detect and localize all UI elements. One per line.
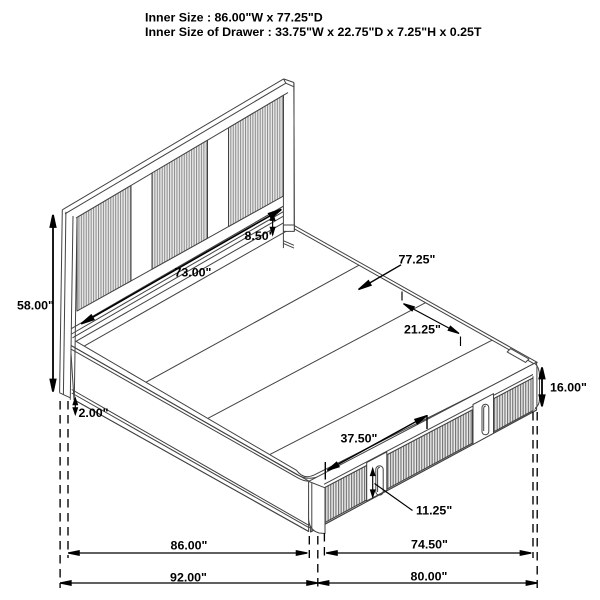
svg-text:74.50": 74.50" (411, 538, 448, 552)
svg-text:Inner Size of Drawer : 33.75"W: Inner Size of Drawer : 33.75"W x 22.75"D… (145, 25, 482, 39)
svg-text:86.00": 86.00" (171, 538, 208, 552)
svg-text:11.25": 11.25" (416, 504, 452, 518)
svg-text:58.00": 58.00" (17, 299, 54, 313)
svg-text:80.00": 80.00" (411, 570, 448, 584)
svg-text:77.25": 77.25" (399, 253, 436, 267)
svg-text:73.00": 73.00" (175, 266, 212, 280)
svg-text:21.25": 21.25" (404, 323, 441, 337)
svg-text:Inner Size : 86.00"W x 77.25"D: Inner Size : 86.00"W x 77.25"D (145, 11, 323, 25)
svg-text:8.50": 8.50" (245, 229, 275, 243)
svg-text:2.00": 2.00" (79, 406, 109, 420)
svg-text:16.00": 16.00" (550, 381, 587, 395)
svg-text:37.50": 37.50" (341, 431, 378, 445)
svg-text:92.00": 92.00" (170, 571, 207, 585)
